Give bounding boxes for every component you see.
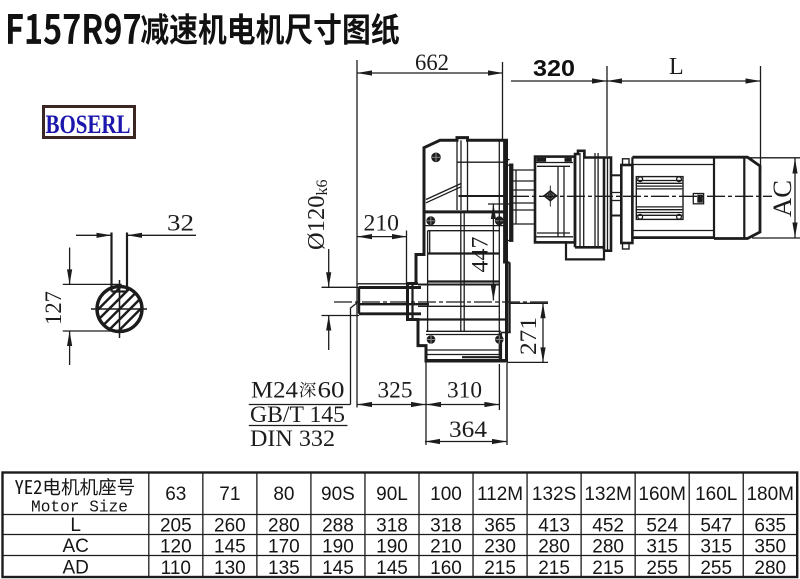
svg-text:210: 210 xyxy=(430,537,462,558)
svg-text:L: L xyxy=(70,515,81,536)
svg-text:L: L xyxy=(669,54,684,80)
svg-text:350: 350 xyxy=(754,537,786,558)
svg-text:280: 280 xyxy=(754,558,786,579)
svg-text:AC: AC xyxy=(767,180,797,217)
svg-text:60: 60 xyxy=(318,378,345,404)
svg-text:318: 318 xyxy=(430,516,462,537)
svg-text:180M: 180M xyxy=(746,484,794,505)
svg-text:32: 32 xyxy=(167,211,194,237)
svg-text:230: 230 xyxy=(484,537,516,558)
svg-text:AD: AD xyxy=(62,558,88,579)
svg-text:280: 280 xyxy=(268,516,300,537)
svg-text:145: 145 xyxy=(322,558,354,579)
svg-text:110: 110 xyxy=(161,558,191,579)
svg-text:215: 215 xyxy=(484,558,516,579)
svg-text:365: 365 xyxy=(484,516,516,537)
svg-text:315: 315 xyxy=(646,537,678,558)
svg-text:255: 255 xyxy=(700,558,732,579)
svg-text:447: 447 xyxy=(468,236,494,272)
svg-text:M24: M24 xyxy=(251,378,298,404)
svg-text:120: 120 xyxy=(160,537,192,558)
svg-text:210: 210 xyxy=(364,211,400,237)
svg-text:215: 215 xyxy=(592,558,624,579)
svg-text:AC: AC xyxy=(62,536,88,557)
svg-text:190: 190 xyxy=(322,537,354,558)
svg-text:130: 130 xyxy=(214,558,246,579)
svg-text:160: 160 xyxy=(430,558,462,579)
svg-text:260: 260 xyxy=(214,516,246,537)
svg-text:547: 547 xyxy=(700,516,732,537)
svg-text:90L: 90L xyxy=(376,484,408,505)
svg-text:127: 127 xyxy=(41,291,67,325)
svg-text:310: 310 xyxy=(447,378,482,404)
svg-text:170: 170 xyxy=(268,537,300,558)
svg-text:80: 80 xyxy=(273,484,294,505)
svg-text:DIN 332: DIN 332 xyxy=(250,426,335,452)
svg-text:288: 288 xyxy=(322,516,354,537)
svg-text:524: 524 xyxy=(646,516,678,537)
svg-text:190: 190 xyxy=(376,537,408,558)
svg-text:325: 325 xyxy=(378,378,413,404)
svg-text:63: 63 xyxy=(165,484,186,505)
svg-text:315: 315 xyxy=(700,537,732,558)
svg-text:452: 452 xyxy=(592,516,624,537)
svg-text:160L: 160L xyxy=(695,484,737,505)
svg-text:145: 145 xyxy=(214,537,246,558)
svg-text:280: 280 xyxy=(538,537,570,558)
svg-text:320: 320 xyxy=(533,55,575,81)
svg-text:BOSERL: BOSERL xyxy=(46,110,131,139)
svg-text:145: 145 xyxy=(376,558,408,579)
svg-text:215: 215 xyxy=(538,558,570,579)
svg-text:71: 71 xyxy=(219,484,240,505)
svg-text:364: 364 xyxy=(449,417,487,443)
svg-text:280: 280 xyxy=(592,537,624,558)
svg-text:112M: 112M xyxy=(477,484,523,505)
svg-text:90S: 90S xyxy=(321,484,355,505)
svg-text:635: 635 xyxy=(754,516,786,537)
svg-text:318: 318 xyxy=(376,516,408,537)
svg-text:160M: 160M xyxy=(638,484,686,505)
svg-text:132S: 132S xyxy=(532,484,576,505)
svg-text:255: 255 xyxy=(646,558,678,579)
svg-text:662: 662 xyxy=(415,50,449,76)
svg-text:271: 271 xyxy=(516,317,542,355)
svg-text:100: 100 xyxy=(430,484,462,505)
svg-text:413: 413 xyxy=(538,516,570,537)
svg-text:205: 205 xyxy=(160,516,192,537)
svg-text:135: 135 xyxy=(268,558,300,579)
svg-text:GB/T 145: GB/T 145 xyxy=(250,402,345,428)
svg-text:132M: 132M xyxy=(584,484,632,505)
